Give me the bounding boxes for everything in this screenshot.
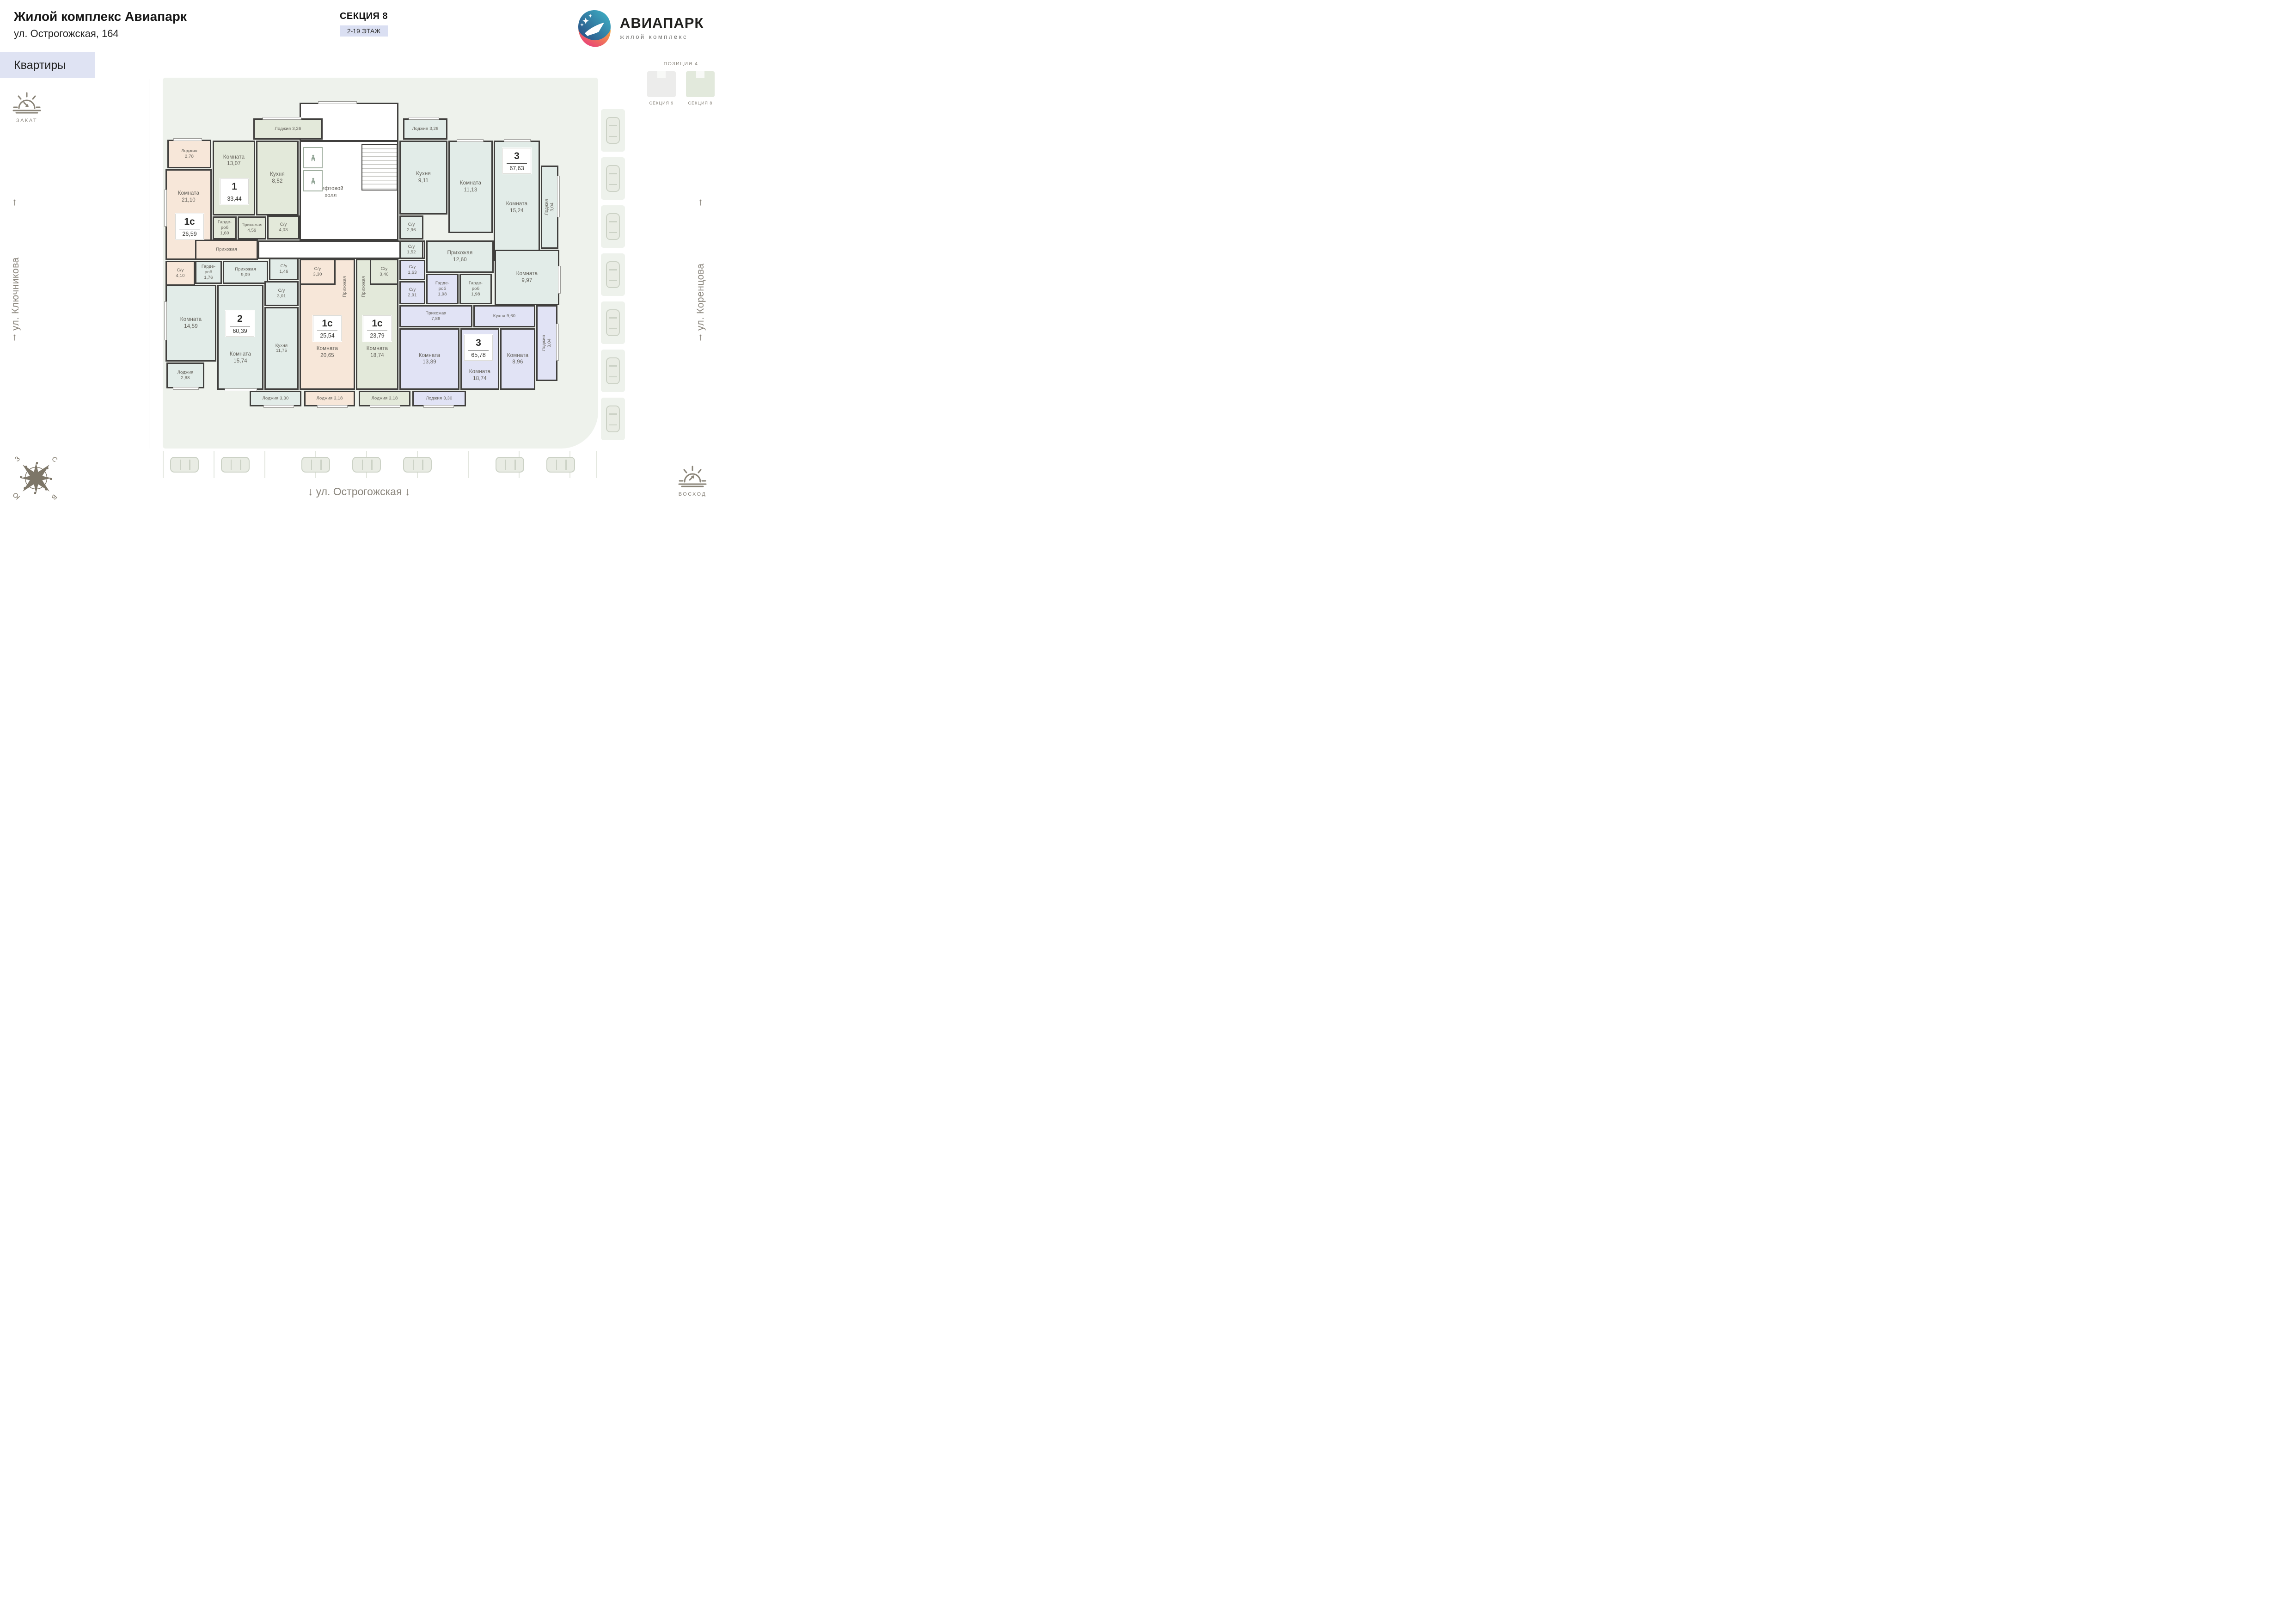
room-loggia-3-30-w: Лоджия 3,30: [250, 391, 301, 406]
elevator-icon: [303, 147, 323, 168]
room-su-3-46: С/у3,46: [370, 259, 398, 285]
svg-text:С: С: [50, 455, 59, 464]
arrow-up-icon: ↑: [12, 196, 17, 208]
window-mark: [173, 387, 199, 390]
room-loggia-3-18-w: Лоджия 3,18: [304, 391, 355, 406]
apartment-badge-5-type-1с[interactable]: 1с25,54: [313, 315, 342, 341]
apartment-badge-3-type-3[interactable]: 367,63: [502, 148, 531, 174]
apartment-badge-6-type-1с[interactable]: 1с23,79: [363, 315, 392, 341]
apartment-badge-2-type-1[interactable]: 133,44: [220, 178, 249, 204]
room-su-4-03: С/у4,03: [267, 215, 300, 240]
sunrise-label: ВОСХОД: [674, 492, 711, 497]
window-mark: [317, 405, 348, 408]
room-loggia-3-04-s: Лоджия3,04: [536, 305, 557, 381]
room-hall-4-59: Прихожая4,59: [238, 216, 266, 240]
window-mark: [370, 405, 400, 408]
street-right-label: ул. Коренцова: [695, 210, 706, 331]
room-su-2-96: С/у2,96: [399, 215, 423, 240]
room-loggia-3-30-e: Лоджия 3,30: [412, 391, 466, 406]
room-su-1-63: С/у1,63: [399, 260, 425, 280]
window-mark: [409, 117, 439, 120]
room-room-13-89: Комната13,89: [399, 328, 459, 390]
apartment-badge-1-type-1с[interactable]: 1с26,59: [175, 214, 204, 240]
room-su-3-01: С/у3,01: [264, 281, 299, 306]
window-mark: [263, 117, 301, 120]
room-wardrobe-1-60: Гарде-роб1,60: [213, 216, 237, 240]
window-mark: [423, 405, 454, 408]
room-kitchen-9-11: Кухня9,11: [399, 141, 447, 215]
room-room-9-97: Комната9,97: [495, 250, 559, 305]
window-mark: [318, 101, 357, 104]
room-su-1-46: С/у1,46: [269, 258, 299, 280]
page: Жилой комплекс Авиапарк ул. Острогожская…: [0, 0, 718, 507]
room-loggia-2-68: Лоджия2,68: [166, 362, 204, 388]
room-su-2-91: С/у2,91: [399, 281, 425, 304]
room-hall-9-09: Прихожая9,09: [223, 261, 268, 284]
room-su-1-52: С/у1,52: [399, 240, 423, 259]
window-mark: [225, 388, 257, 391]
room-loggia-2-78: Лоджия2,78: [167, 140, 211, 168]
arrow-down-icon: ↓: [402, 485, 410, 498]
arrow-up-icon: ↑: [698, 331, 703, 343]
room-loggia-3-18-e: Лоджия 3,18: [359, 391, 410, 406]
window-mark: [504, 139, 531, 142]
floor-plan: ЛифтовойхоллЛоджия2,78Комната21,10С/у4,1…: [0, 0, 718, 507]
arrow-up-icon: ↑: [698, 196, 703, 208]
room-hall-1s-26: Прихожая: [195, 240, 258, 260]
stairs-icon: [361, 144, 398, 190]
window-mark: [457, 139, 484, 142]
window-mark: [173, 138, 202, 141]
window-mark: [556, 324, 559, 361]
room-hall-rot-23: Прихожая: [356, 260, 372, 313]
window-mark: [164, 190, 167, 227]
room-wardrobe-1-76: Гарде-роб1,76: [195, 261, 222, 284]
sunrise-icon: [678, 481, 707, 489]
window-mark: [557, 176, 560, 217]
svg-text:В: В: [49, 492, 58, 501]
street-left-label: ул. Ключникова: [10, 210, 21, 331]
room-su-4-10: С/у4,10: [165, 261, 195, 286]
room-kitchen-11-75: Кухня11,75: [264, 307, 299, 390]
room-loggia-3-04-n: Лоджия3,04: [541, 166, 558, 249]
arrow-up-icon: ↑: [12, 331, 17, 343]
apartment-badge-4-type-2[interactable]: 260,39: [226, 311, 254, 337]
room-wardrobe-1-98-e: Гарде-роб1,98: [459, 274, 492, 304]
svg-text:З: З: [13, 455, 22, 463]
room-hall-rot-25: Прихожая: [336, 260, 354, 313]
room-loggia-3-26-w: Лоджия 3,26: [253, 118, 323, 140]
room-hall-7-88: Прихожая7,88: [399, 305, 472, 327]
svg-text:Ю: Ю: [12, 491, 22, 501]
elevator-icon: [303, 170, 323, 191]
room-room-15-74: Комната15,74: [217, 285, 263, 390]
room-room-8-96: Комната8,96: [500, 328, 535, 390]
sunrise-indicator: ВОСХОД: [674, 464, 711, 497]
arrow-down-icon: ↓: [308, 485, 316, 498]
room-su-3-30: С/у3,30: [300, 259, 336, 285]
room-room-14-59: Комната14,59: [165, 285, 216, 362]
room-wardrobe-1-98-w: Гарде-роб1,98: [426, 274, 459, 304]
room-room-11-13: Комната11,13: [448, 141, 493, 233]
window-mark: [263, 405, 294, 408]
apartment-badge-7-type-3[interactable]: 365,78: [464, 335, 493, 361]
compass-rose-icon: З С В Ю: [11, 453, 61, 505]
room-hall-12-60: Прихожая12,60: [426, 240, 494, 273]
window-mark: [164, 301, 167, 340]
room-kitchen-9-60: Кухня 9,60: [473, 305, 535, 327]
room-kitchen-8-52: Кухня8,52: [256, 141, 299, 215]
window-mark: [558, 266, 561, 294]
room-loggia-3-26-e: Лоджия 3,26: [403, 118, 447, 140]
street-bottom-label: ↓ ул. Острогожская ↓: [0, 485, 718, 498]
